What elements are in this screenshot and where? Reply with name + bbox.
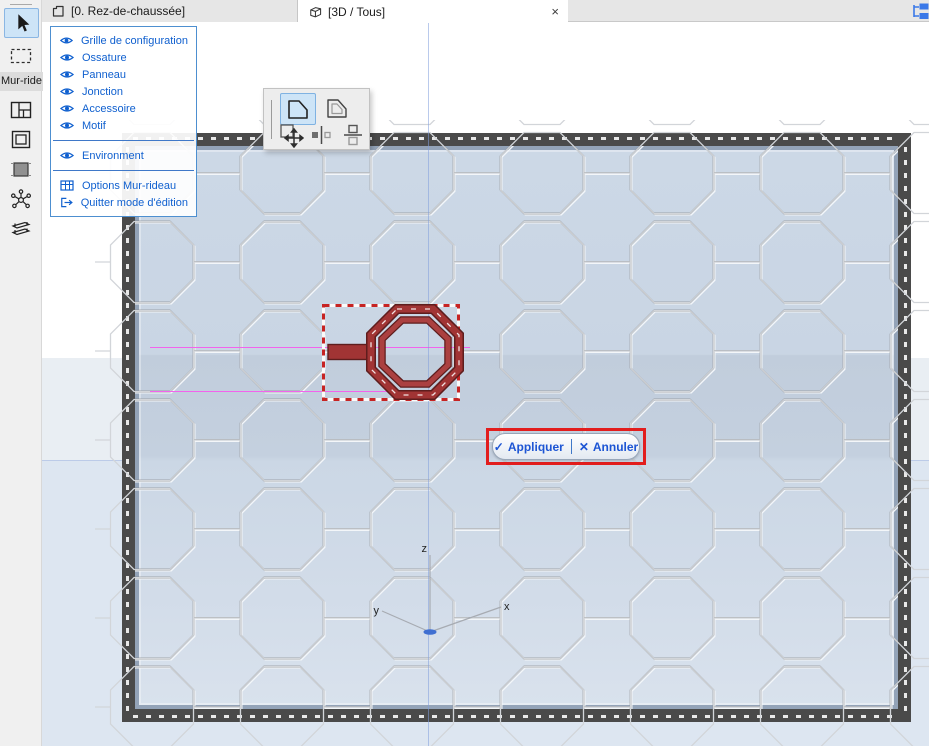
panel-item-environment[interactable]: Environment	[51, 147, 196, 164]
eye-icon	[59, 119, 75, 132]
accessory-louver-icon	[9, 217, 33, 239]
panel-item-label: Panneau	[82, 69, 126, 81]
panel-item-frame[interactable]: Ossature	[51, 49, 196, 66]
x-axis-label: x	[504, 601, 510, 613]
junction-node-icon	[9, 188, 33, 212]
panel-shape-tool-selected[interactable]	[280, 93, 316, 125]
arrow-tool[interactable]	[4, 8, 39, 38]
panel-item-exit-edit-mode[interactable]: Quitter mode d'édition	[51, 194, 196, 211]
panel-shape-icon	[284, 96, 312, 122]
eye-icon	[59, 149, 75, 162]
frame-icon	[9, 129, 33, 151]
toolbox: Mur-ride	[0, 0, 42, 746]
panel-offset-icon	[323, 95, 351, 121]
tab-label: [0. Rez-de-chaussée]	[71, 4, 185, 18]
selected-frame-element[interactable]	[315, 298, 475, 410]
navigator-tree-icon[interactable]	[911, 2, 929, 21]
panel-item-label: Accessoire	[82, 103, 136, 115]
tab-close-icon[interactable]: ×	[551, 5, 559, 18]
options-grid-icon	[59, 179, 75, 192]
tab-floor-plan[interactable]: [0. Rez-de-chaussée]	[42, 0, 298, 22]
panel-item-label: Quitter mode d'édition	[81, 197, 188, 209]
eye-icon	[59, 51, 75, 64]
distribute-tool[interactable]	[340, 122, 366, 148]
toolbox-divider	[10, 4, 32, 5]
panel-item-label: Environment	[82, 150, 144, 162]
frame-member-octagon[interactable]	[371, 309, 459, 395]
toolbox-group-label: Mur-ride	[0, 72, 43, 91]
marquee-tool[interactable]	[4, 42, 37, 70]
panel-separator	[53, 170, 194, 171]
pet-palette	[263, 88, 370, 150]
cursor-arrow-icon	[11, 12, 33, 34]
frame-tool[interactable]	[4, 126, 37, 154]
panel-item-accessory[interactable]: Accessoire	[51, 100, 196, 117]
panel-item-configuration-grid[interactable]: Grille de configuration	[51, 32, 196, 49]
junction-tool[interactable]	[4, 186, 37, 214]
panel-item-panel[interactable]: Panneau	[51, 66, 196, 83]
cancel-button[interactable]: ✕ Annuler	[579, 440, 638, 454]
scheme-grid-icon	[9, 99, 33, 121]
align-icon	[310, 123, 334, 147]
y-axis-label: y	[374, 605, 380, 617]
panel-item-junction[interactable]: Jonction	[51, 83, 196, 100]
tab-3d-view[interactable]: [3D / Tous] ×	[298, 0, 568, 23]
check-icon: ✓	[494, 440, 504, 454]
button-separator	[571, 439, 572, 454]
panel-separator	[53, 140, 194, 141]
panel-tool[interactable]	[4, 156, 37, 184]
align-tool[interactable]	[309, 122, 335, 148]
eye-icon	[59, 34, 74, 47]
cube-3d-icon	[307, 4, 322, 19]
apply-button[interactable]: ✓ Appliquer	[494, 440, 564, 454]
eye-icon	[59, 102, 75, 115]
floor-plan-icon	[51, 4, 65, 18]
origin-axes: z y x	[330, 515, 520, 640]
x-icon: ✕	[579, 440, 589, 454]
apply-button-label: Appliquer	[508, 440, 564, 454]
move-tool[interactable]	[277, 122, 305, 148]
marquee-icon	[9, 46, 33, 66]
cancel-button-label: Annuler	[593, 440, 638, 454]
panel-item-label: Options Mur-rideau	[82, 180, 176, 192]
panel-item-label: Ossature	[82, 52, 127, 64]
panel-item-label: Grille de configuration	[81, 35, 188, 47]
z-axis-label: z	[422, 543, 428, 555]
curtain-wall-edit-panel: Grille de configuration Ossature Panneau…	[50, 26, 197, 217]
eye-icon	[59, 85, 75, 98]
panel-item-curtain-wall-options[interactable]: Options Mur-rideau	[51, 177, 196, 194]
view-tab-bar: [0. Rez-de-chaussée] [3D / Tous] ×	[42, 0, 929, 22]
tab-label: [3D / Tous]	[328, 5, 385, 19]
panel-fill-icon	[9, 159, 33, 181]
eye-icon	[59, 68, 75, 81]
panel-item-pattern[interactable]: Motif	[51, 117, 196, 134]
confirmation-bar: ✓ Appliquer ✕ Annuler	[492, 433, 640, 460]
distribute-icon	[341, 123, 365, 147]
panel-item-label: Jonction	[82, 86, 123, 98]
origin-marker[interactable]	[424, 629, 437, 635]
scheme-tool[interactable]	[4, 96, 37, 124]
panel-item-label: Motif	[82, 120, 106, 132]
accessory-tool[interactable]	[4, 214, 37, 242]
palette-drag-handle[interactable]	[271, 100, 272, 139]
move-icon	[278, 122, 304, 148]
exit-icon	[59, 196, 74, 209]
panel-offset-tool[interactable]	[320, 93, 354, 123]
